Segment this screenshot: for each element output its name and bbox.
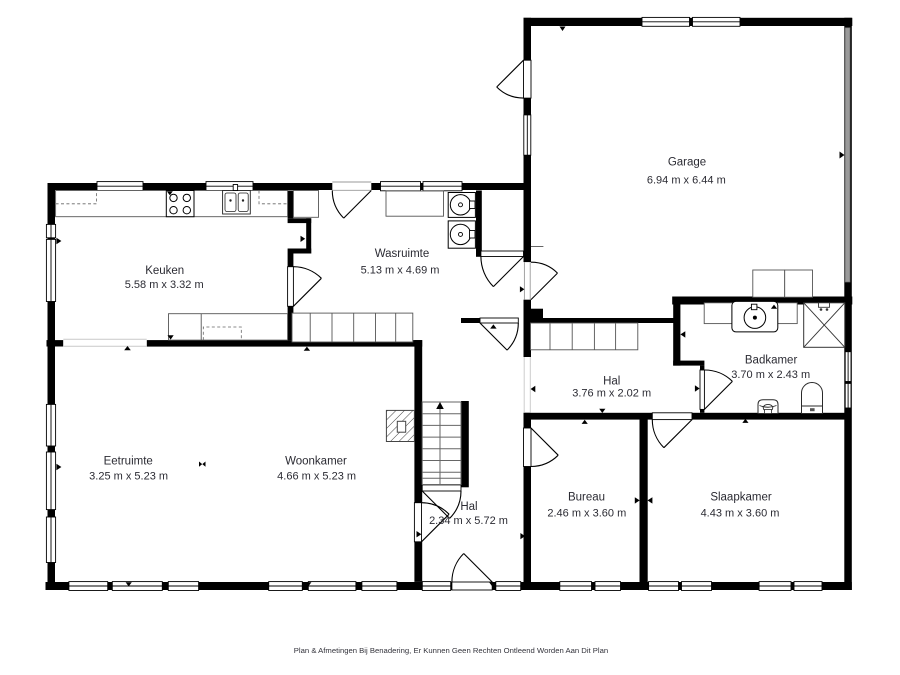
svg-text:Hal: Hal <box>603 375 620 387</box>
svg-text:Plan & Afmetingen Bij Benaderi: Plan & Afmetingen Bij Benadering, Er Kun… <box>294 646 608 655</box>
svg-text:Woonkamer: Woonkamer <box>285 455 347 467</box>
svg-text:3.25 m x 5.23 m: 3.25 m x 5.23 m <box>89 471 168 483</box>
svg-text:3.76 m x 2.02 m: 3.76 m x 2.02 m <box>572 388 651 400</box>
svg-text:Eetruimte: Eetruimte <box>104 455 153 467</box>
svg-text:Badkamer: Badkamer <box>745 354 798 366</box>
svg-text:6.94 m x 6.44 m: 6.94 m x 6.44 m <box>647 174 726 186</box>
svg-text:2.34 m x 5.72 m: 2.34 m x 5.72 m <box>429 515 508 527</box>
svg-text:4.66 m x 5.23 m: 4.66 m x 5.23 m <box>277 471 356 483</box>
svg-text:Wasruimte: Wasruimte <box>375 248 430 260</box>
svg-text:4.43 m x 3.60 m: 4.43 m x 3.60 m <box>701 508 780 520</box>
svg-text:Garage: Garage <box>668 157 706 169</box>
svg-text:Keuken: Keuken <box>145 265 184 277</box>
svg-text:5.13 m x 4.69 m: 5.13 m x 4.69 m <box>361 265 440 277</box>
svg-text:5.58 m x 3.32 m: 5.58 m x 3.32 m <box>125 279 204 291</box>
svg-text:Slaapkamer: Slaapkamer <box>710 491 772 503</box>
svg-text:3.70 m x 2.43 m: 3.70 m x 2.43 m <box>731 369 810 381</box>
svg-text:2.46 m x 3.60 m: 2.46 m x 3.60 m <box>547 508 626 520</box>
svg-text:Bureau: Bureau <box>568 491 605 503</box>
svg-text:Hal: Hal <box>460 501 477 513</box>
